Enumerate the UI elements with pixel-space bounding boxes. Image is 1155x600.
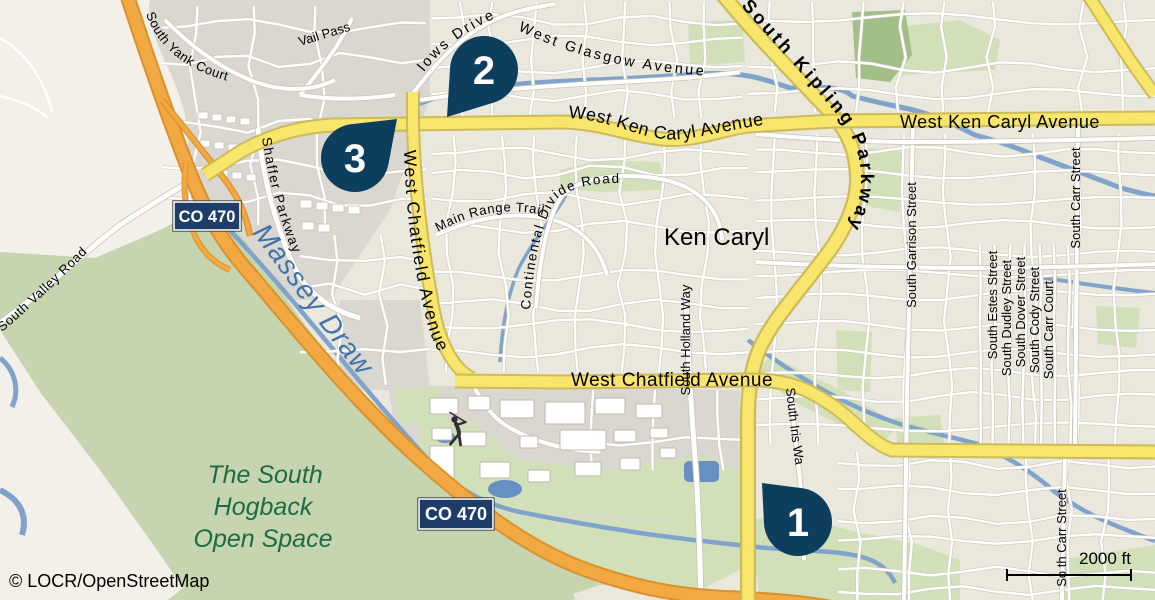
svg-text:CO 470: CO 470 [179,208,236,226]
svg-text:So th Carr Street: So th Carr Street [1054,489,1069,587]
svg-text:South Garrison Street: South Garrison Street [904,182,919,308]
svg-text:© LOCR/OpenStreetMap: © LOCR/OpenStreetMap [9,571,209,591]
svg-text:Ken Caryl: Ken Caryl [664,224,769,251]
svg-text:2000 ft: 2000 ft [1079,549,1131,568]
svg-text:The South: The South [207,461,322,489]
svg-text:1: 1 [787,501,809,545]
svg-text:South Carr Court: South Carr Court [1041,280,1056,379]
svg-text:South Dover Street: South Dover Street [1013,256,1028,367]
svg-text:CO 470: CO 470 [425,504,487,524]
svg-text:Hogback: Hogback [214,493,314,521]
svg-text:South Carr Street: South Carr Street [1068,147,1083,249]
svg-text:2: 2 [473,49,495,93]
svg-text:South Holland Way: South Holland Way [678,284,693,395]
svg-text:South Estes Street: South Estes Street [985,250,1000,359]
svg-text:South Cody Street: South Cody Street [1027,267,1042,374]
svg-text:Open Space: Open Space [194,525,333,553]
svg-text:3: 3 [344,137,366,181]
svg-text:South Dudley Street: South Dudley Street [999,259,1014,376]
svg-text:West Chatfield Avenue: West Chatfield Avenue [571,370,773,391]
svg-text:West Ken Caryl Avenue: West Ken Caryl Avenue [900,112,1100,132]
